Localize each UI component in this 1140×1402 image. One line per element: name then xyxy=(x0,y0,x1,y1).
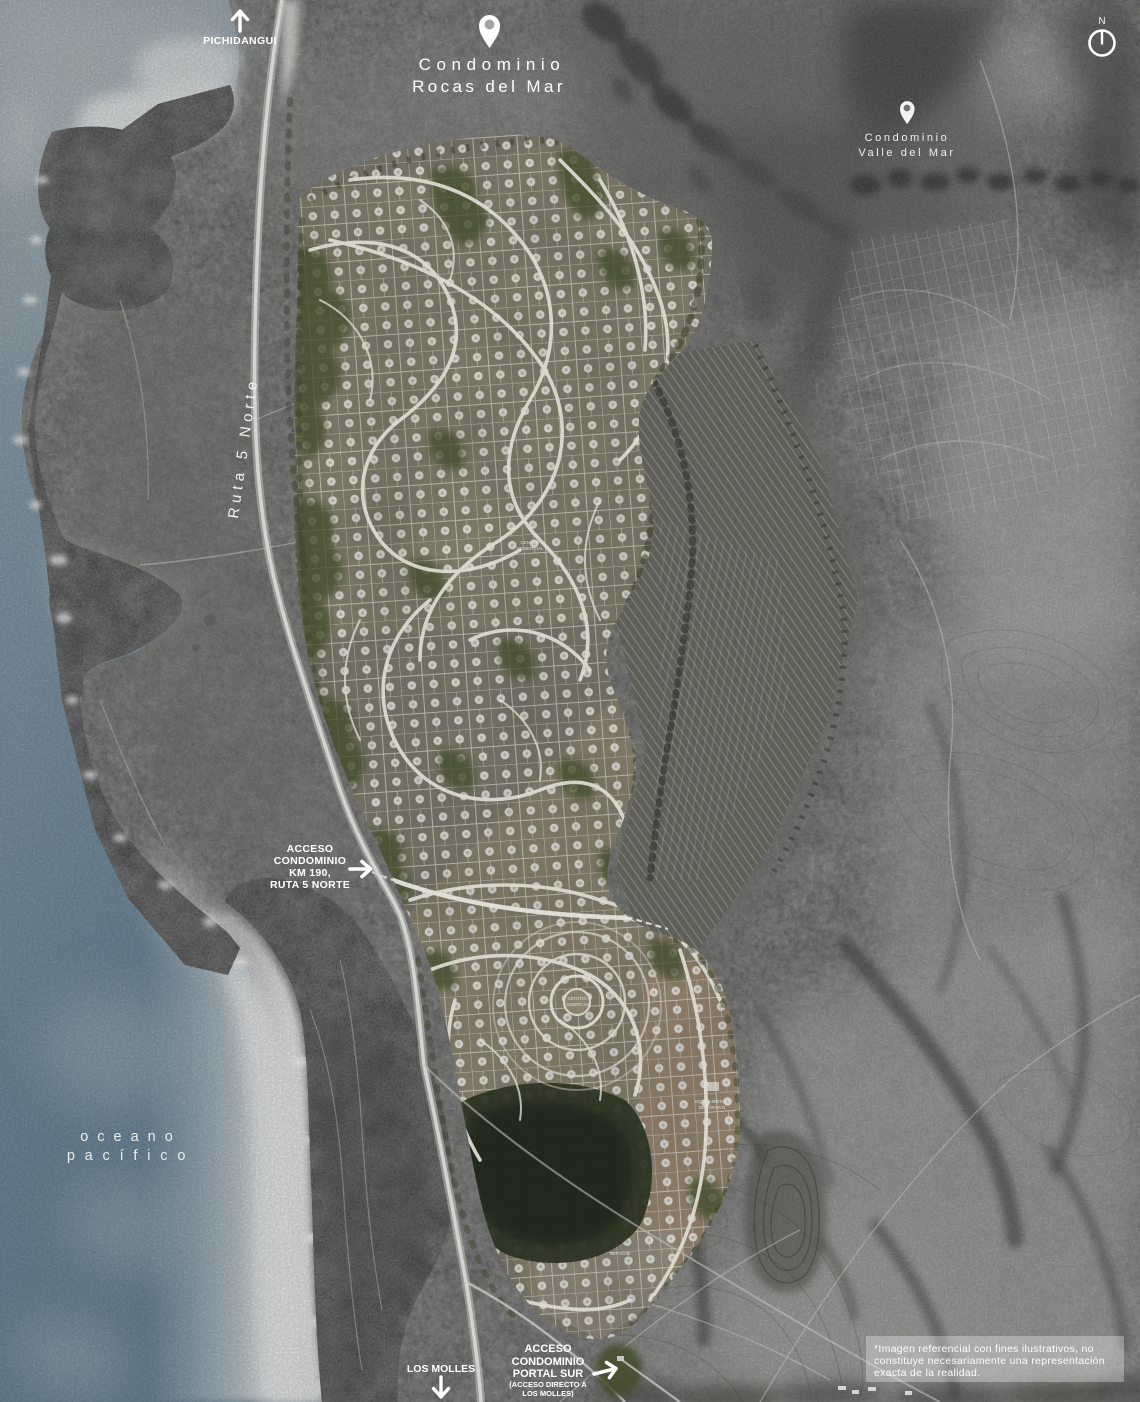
svg-text:KM 190,: KM 190, xyxy=(289,867,331,879)
svg-text:RUTA 5 NORTE: RUTA 5 NORTE xyxy=(270,879,350,891)
svg-text:exacta de la realidad.: exacta de la realidad. xyxy=(874,1367,980,1379)
svg-text:oceano: oceano xyxy=(80,1129,182,1145)
svg-text:LOS MOLLES: LOS MOLLES xyxy=(407,1363,475,1375)
svg-text:pacífico: pacífico xyxy=(67,1148,195,1164)
svg-text:Condominio: Condominio xyxy=(419,55,566,74)
svg-text:Condominio: Condominio xyxy=(865,132,950,144)
svg-text:PICHIDANGUI: PICHIDANGUI xyxy=(203,35,277,47)
svg-text:N: N xyxy=(1098,16,1105,27)
svg-text:Rocas del Mar: Rocas del Mar xyxy=(412,77,566,96)
svg-text:Valle del Mar: Valle del Mar xyxy=(858,147,955,159)
svg-text:ACCESO: ACCESO xyxy=(287,843,334,855)
svg-text:ACCESO: ACCESO xyxy=(524,1343,572,1355)
svg-text:*Imagen referencial con fines: *Imagen referencial con fines ilustrativ… xyxy=(874,1343,1094,1355)
svg-text:PORTAL SUR: PORTAL SUR xyxy=(513,1368,584,1380)
svg-text:constituye necesariamente una: constituye necesariamente una representa… xyxy=(874,1355,1105,1367)
svg-text:CONDOMINIO: CONDOMINIO xyxy=(274,855,346,867)
svg-text:CONDOMINIO: CONDOMINIO xyxy=(512,1356,585,1368)
svg-text:LOS MOLLES): LOS MOLLES) xyxy=(522,1389,574,1398)
svg-text:(ACCESO DIRECTO A: (ACCESO DIRECTO A xyxy=(509,1380,587,1389)
